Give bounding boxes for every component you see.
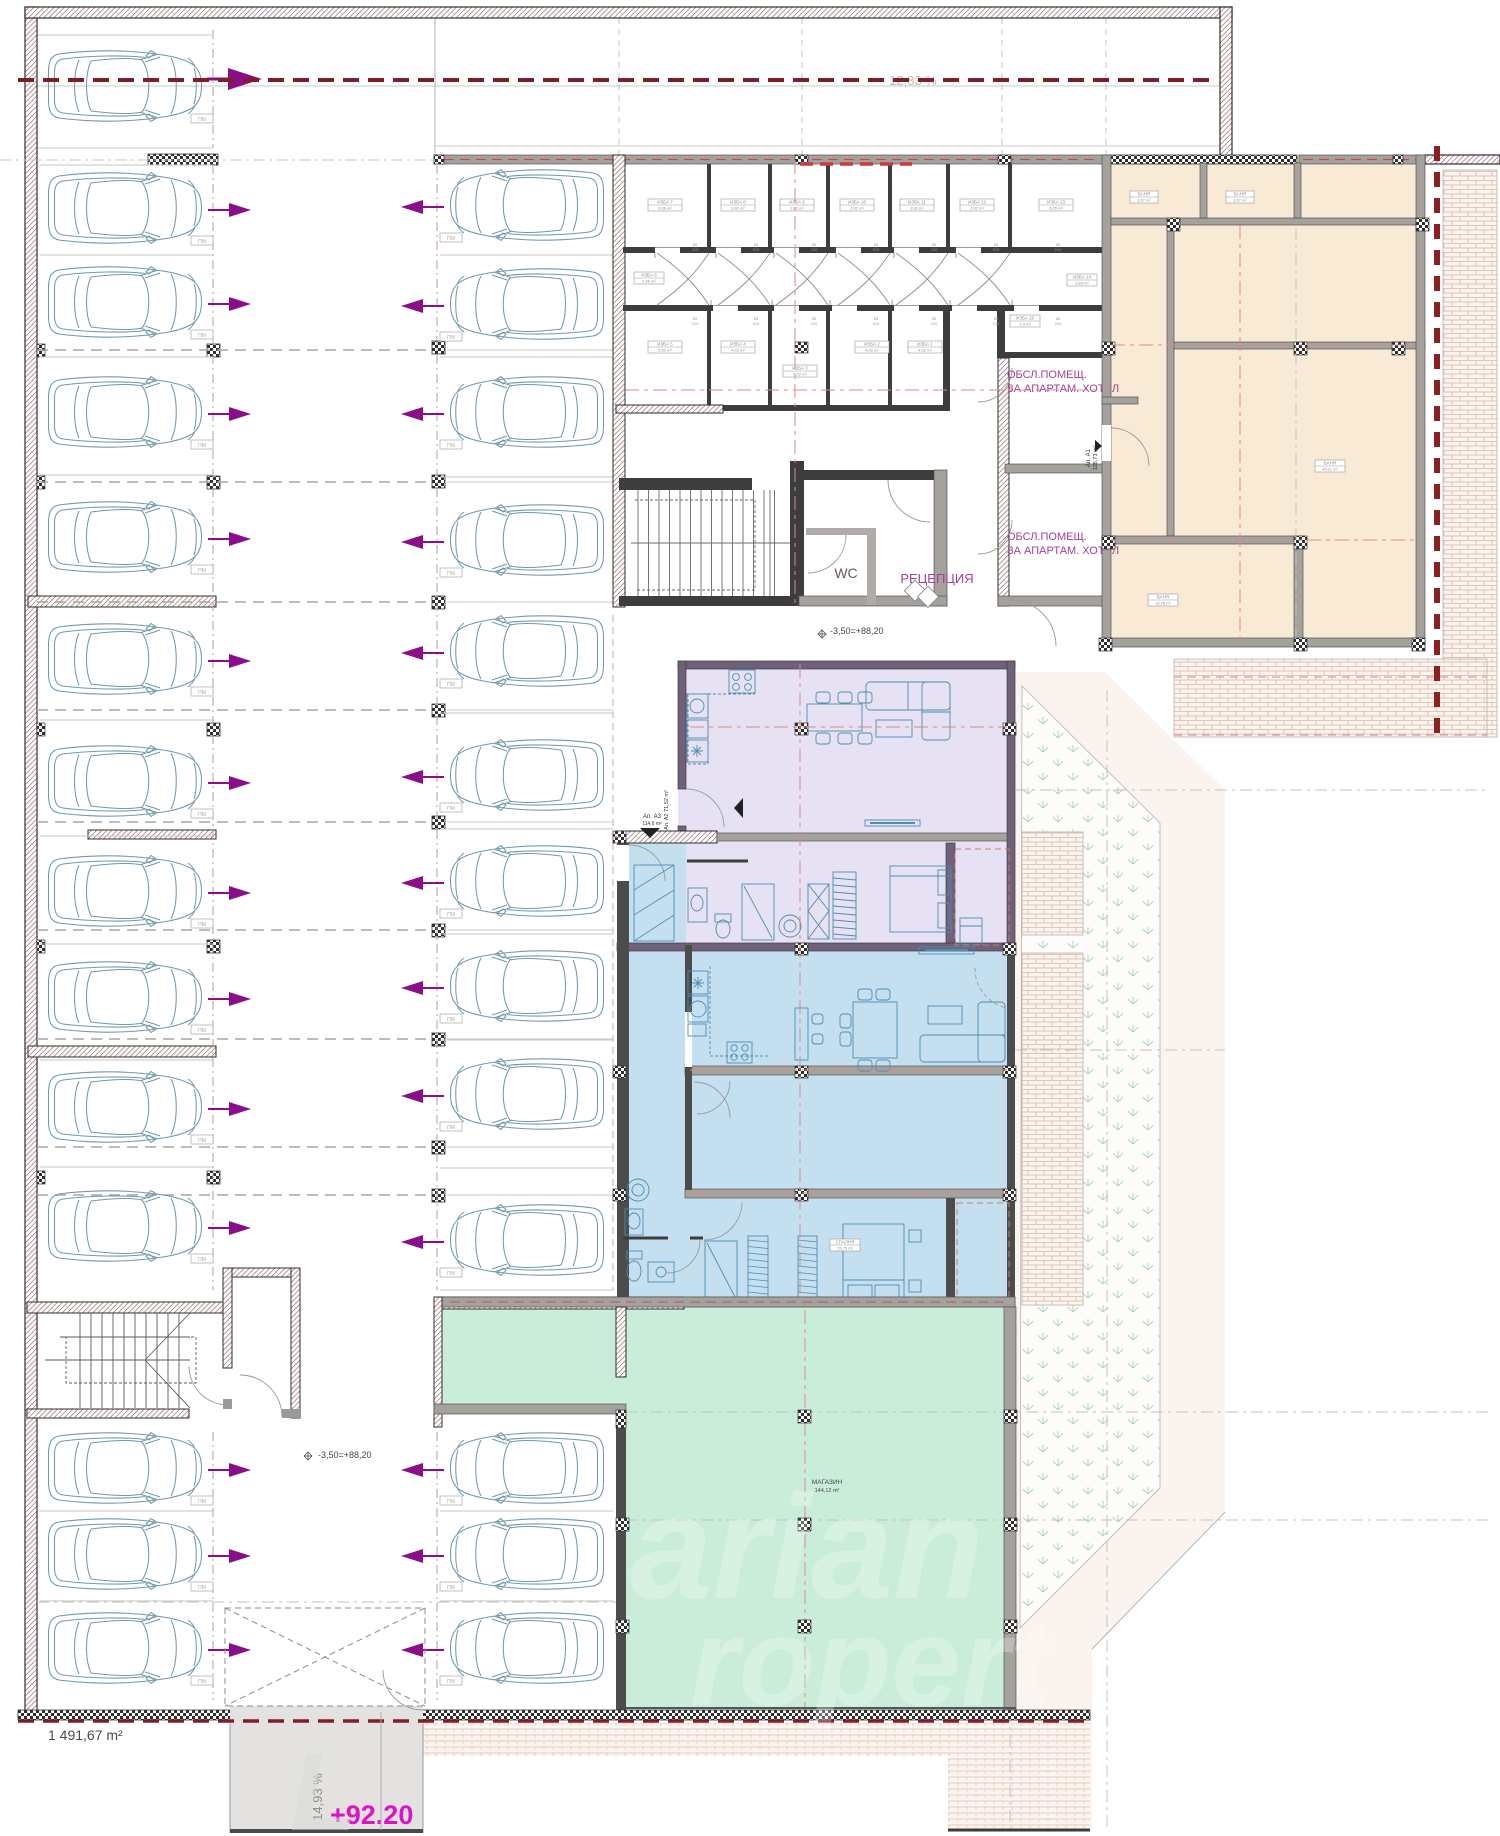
svg-text:ИЗБА 12: ИЗБА 12	[968, 200, 987, 205]
svg-text:6,05 m²: 6,05 m²	[1049, 206, 1063, 211]
svg-text:ИЗБА 11: ИЗБА 11	[908, 200, 926, 205]
svg-text:ПМ: ПМ	[447, 1017, 455, 1023]
svg-text:15,75 m²: 15,75 m²	[1155, 601, 1171, 606]
svg-text:Ап. А2 71,52 m²: Ап. А2 71,52 m²	[664, 790, 670, 830]
svg-text:6,52 m²: 6,52 m²	[658, 348, 672, 353]
svg-text:ПМ: ПМ	[447, 1271, 455, 1277]
svg-text:210: 210	[753, 247, 760, 252]
svg-text:ПМ: ПМ	[198, 812, 206, 818]
svg-text:ИЗБА 9: ИЗБА 9	[789, 200, 805, 205]
svg-text:45,11 m²: 45,11 m²	[1322, 467, 1338, 472]
svg-text:210: 210	[1055, 321, 1062, 326]
svg-text:Ап. А3: Ап. А3	[643, 814, 662, 820]
svg-text:210: 210	[993, 247, 1000, 252]
svg-text:ПМ: ПМ	[198, 1028, 206, 1034]
svg-text:ПМ: ПМ	[198, 333, 206, 339]
svg-text:ПМ: ПМ	[198, 1257, 206, 1263]
svg-text:БАНЯ: БАНЯ	[1324, 461, 1336, 466]
svg-text:210: 210	[692, 321, 699, 326]
svg-text:1,4 m²: 1,4 m²	[1019, 322, 1031, 327]
svg-text:4,02 m²: 4,02 m²	[731, 348, 745, 353]
svg-text:ПМ: ПМ	[198, 1585, 206, 1591]
svg-text:ИЗБА 8: ИЗБА 8	[730, 200, 746, 205]
svg-text:210: 210	[811, 321, 818, 326]
svg-text:ПМ: ПМ	[447, 236, 455, 242]
svg-text:3,92 m²: 3,92 m²	[790, 206, 804, 211]
svg-text:3,92 m²: 3,92 m²	[731, 206, 745, 211]
svg-text:210: 210	[811, 247, 818, 252]
svg-text:ПМ: ПМ	[447, 571, 455, 577]
svg-text:2,83 m²: 2,83 m²	[1075, 281, 1089, 286]
svg-text:ИЗБА 5: ИЗБА 5	[657, 342, 673, 347]
svg-text:ПМ: ПМ	[447, 335, 455, 341]
svg-text:ПМ: ПМ	[447, 1585, 455, 1591]
svg-text:ПМ: ПМ	[198, 443, 206, 449]
svg-text:ИЗБА 14: ИЗБА 14	[1073, 275, 1092, 280]
svg-text:ПМ: ПМ	[198, 690, 206, 696]
svg-text:ПМ: ПМ	[198, 1499, 206, 1505]
svg-text:3,92 m²: 3,92 m²	[850, 206, 864, 211]
svg-text:210: 210	[1055, 247, 1062, 252]
svg-text:ИЗБА 10: ИЗБА 10	[848, 200, 867, 205]
svg-text:3,92 m²: 3,92 m²	[910, 206, 924, 211]
svg-text:ПМ: ПМ	[198, 568, 206, 574]
svg-text:БАНЯ: БАНЯ	[1157, 595, 1169, 600]
svg-text:114,6 m²: 114,6 m²	[642, 821, 662, 827]
svg-text:ПМ: ПМ	[198, 239, 206, 245]
svg-text:ИЗБА 6: ИЗБА 6	[641, 273, 657, 278]
svg-text:1,46 m²: 1,46 m²	[642, 279, 656, 284]
svg-text:210: 210	[692, 247, 699, 252]
svg-text:3,37 m²: 3,37 m²	[1137, 198, 1151, 203]
svg-text:СПАЛНЯ: СПАЛНЯ	[835, 1240, 854, 1245]
svg-text:ПМ: ПМ	[198, 117, 206, 123]
svg-text:ИЗБА 4: ИЗБА 4	[730, 342, 746, 347]
svg-text:ИЗБА 1: ИЗБА 1	[917, 342, 933, 347]
svg-text:210: 210	[931, 247, 938, 252]
svg-text:1 491,67 m²: 1 491,67 m²	[48, 1727, 123, 1743]
svg-text:6,06 m²: 6,06 m²	[658, 206, 672, 211]
svg-text:ИЗБА 7: ИЗБА 7	[657, 200, 673, 205]
svg-text:ИЗБА 13: ИЗБА 13	[1047, 200, 1066, 205]
svg-text:3,92 m²: 3,92 m²	[970, 206, 984, 211]
svg-text:210: 210	[993, 321, 1000, 326]
svg-text:ОБСЛ.ПОМЕЩ.: ОБСЛ.ПОМЕЩ.	[1007, 369, 1087, 381]
svg-text:ПМ: ПМ	[447, 1679, 455, 1685]
svg-text:WC: WC	[834, 565, 857, 581]
svg-text:ПМ: ПМ	[447, 443, 455, 449]
svg-text:4,02 m²: 4,02 m²	[865, 348, 879, 353]
svg-text:БАНЯ: БАНЯ	[1234, 192, 1246, 197]
svg-text:3,37 m²: 3,37 m²	[1233, 198, 1247, 203]
svg-text:ИЗБА 2: ИЗБА 2	[864, 342, 880, 347]
svg-text:-3,50=+88,20: -3,50=+88,20	[318, 1450, 372, 1460]
svg-text:210: 210	[873, 247, 880, 252]
svg-text:Ап. А1: Ап. А1	[1086, 448, 1092, 467]
svg-text:210: 210	[753, 321, 760, 326]
svg-text:ОБСЛ.ПОМЕЩ.: ОБСЛ.ПОМЕЩ.	[1007, 531, 1087, 543]
svg-text:ПМ: ПМ	[198, 922, 206, 928]
svg-text:ПМ: ПМ	[447, 806, 455, 812]
svg-text:15,75 m²: 15,75 m²	[837, 1246, 853, 1251]
svg-text:ПМ: ПМ	[447, 1125, 455, 1131]
svg-text:4,02 m²: 4,02 m²	[918, 348, 932, 353]
svg-text:ПМ: ПМ	[447, 682, 455, 688]
svg-text:-3,50=+88,20: -3,50=+88,20	[830, 626, 884, 636]
svg-text:БАНЯ: БАНЯ	[1138, 192, 1150, 197]
svg-text:ПМ: ПМ	[198, 1679, 206, 1685]
svg-text:ПМ: ПМ	[447, 912, 455, 918]
svg-text:210: 210	[873, 321, 880, 326]
svg-text:ropert: ropert	[690, 1593, 1056, 1732]
svg-text:L: L	[290, 1731, 357, 1836]
svg-text:ПМ: ПМ	[198, 1138, 206, 1144]
svg-text:ПМ: ПМ	[447, 1499, 455, 1505]
svg-text:ИЗБА 15: ИЗБА 15	[1016, 316, 1035, 321]
svg-text:210: 210	[931, 321, 938, 326]
